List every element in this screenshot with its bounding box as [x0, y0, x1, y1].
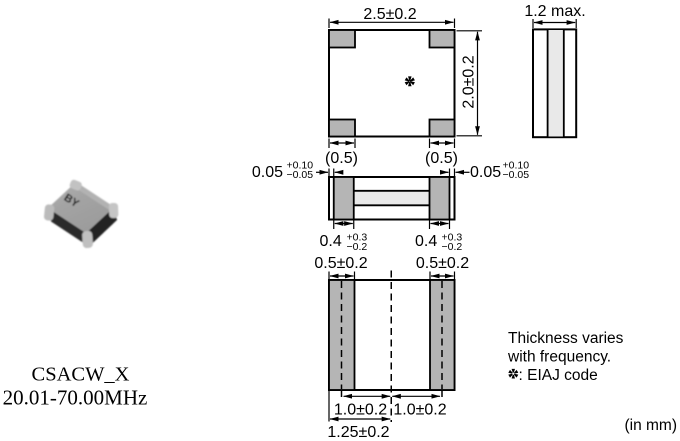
- svg-text:(0.5): (0.5): [425, 150, 458, 167]
- svg-text:2.0±0.2: 2.0±0.2: [460, 55, 477, 108]
- svg-text:: EIAJ code: : EIAJ code: [519, 367, 598, 384]
- svg-text:1.25±0.2: 1.25±0.2: [327, 424, 389, 441]
- svg-text:1.0±0.2: 1.0±0.2: [334, 402, 387, 419]
- svg-text:0.5±0.2: 0.5±0.2: [314, 255, 367, 272]
- svg-text:−0.2: −0.2: [347, 241, 368, 253]
- svg-text:0.05: 0.05: [470, 164, 501, 181]
- svg-text:20.01-70.00MHz: 20.01-70.00MHz: [3, 386, 148, 410]
- svg-text:0.05: 0.05: [252, 164, 283, 181]
- svg-text:−0.2: −0.2: [442, 241, 463, 253]
- svg-text:Thickness varies: Thickness varies: [508, 330, 624, 347]
- svg-text:(0.5): (0.5): [325, 150, 358, 167]
- svg-text:0.5±0.2: 0.5±0.2: [416, 255, 469, 272]
- svg-text:CSACW_X: CSACW_X: [32, 364, 130, 386]
- svg-text:with frequency.: with frequency.: [507, 349, 611, 366]
- svg-text:−0.05: −0.05: [287, 169, 314, 181]
- svg-text:1.2 max.: 1.2 max.: [524, 3, 585, 20]
- svg-text:0.4: 0.4: [415, 233, 437, 250]
- svg-text:2.5±0.2: 2.5±0.2: [363, 6, 416, 23]
- svg-text:1.0±0.2: 1.0±0.2: [393, 402, 446, 419]
- svg-text:−0.05: −0.05: [503, 169, 530, 181]
- svg-text:0.4: 0.4: [320, 233, 342, 250]
- svg-text:(in mm): (in mm): [624, 417, 677, 434]
